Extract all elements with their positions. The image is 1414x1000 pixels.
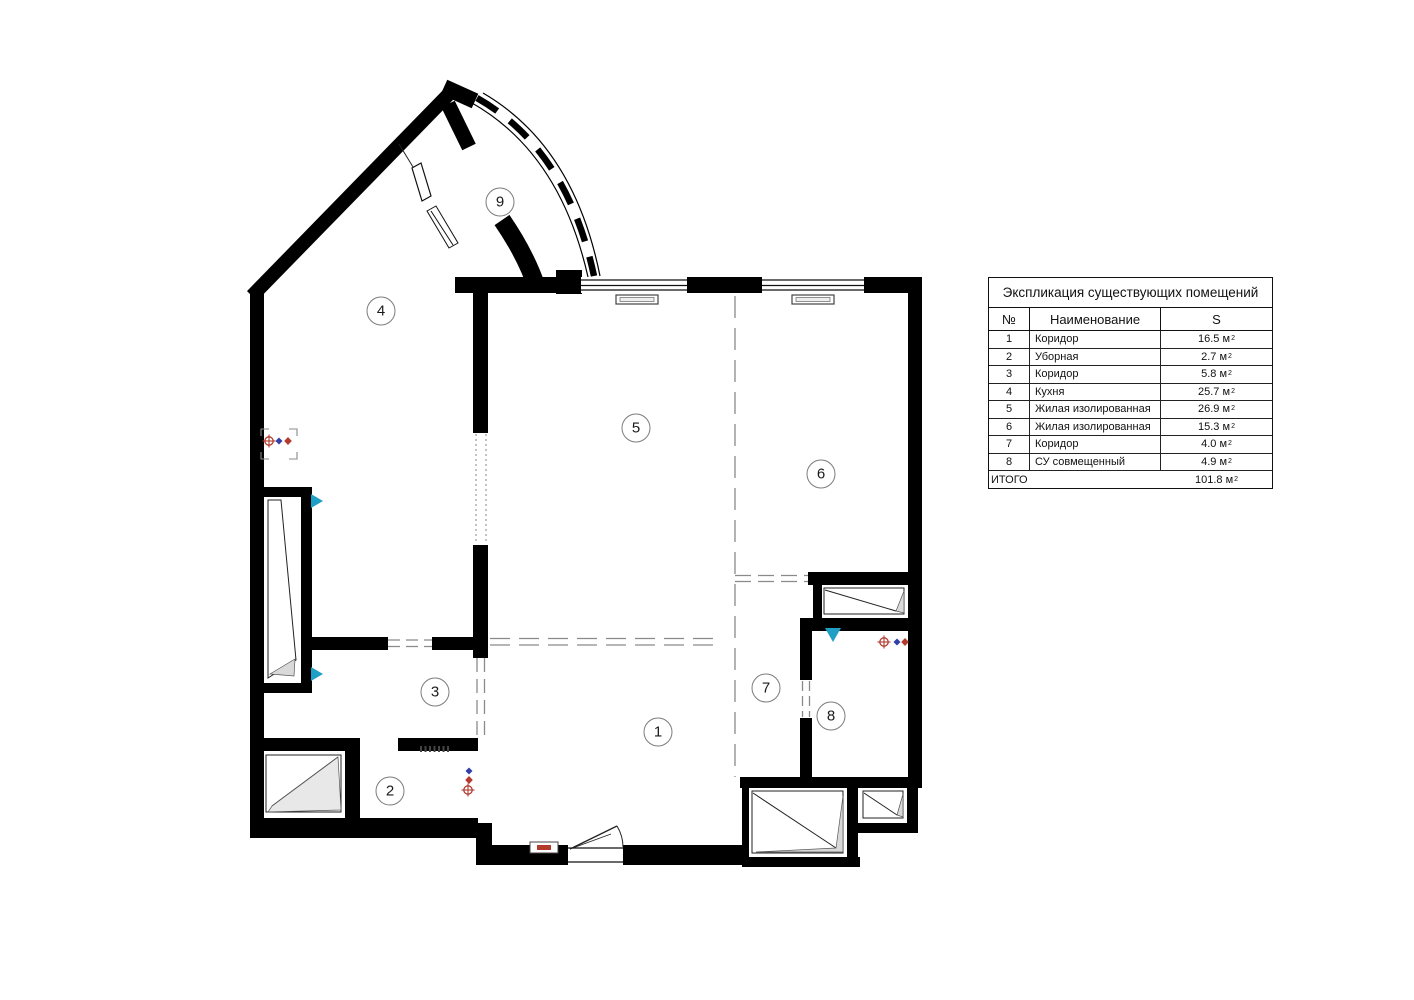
- window: [581, 277, 687, 293]
- room-badge-6: 6: [807, 460, 836, 489]
- survey-target-icon: [462, 784, 475, 797]
- cell-area: 25.7 м2: [1161, 384, 1272, 401]
- cell-name: Жилая изолированная: [1030, 401, 1161, 418]
- loggia-door-window: [399, 144, 458, 248]
- walls: [250, 270, 922, 867]
- door-leaf: [824, 588, 904, 614]
- room-badge-4: 4: [367, 297, 396, 326]
- cell-name: Кухня: [1030, 384, 1161, 401]
- cell-area: 26.9 м2: [1161, 401, 1272, 418]
- cell-num: 2: [989, 349, 1030, 366]
- cell-area: 16.5 м2: [1161, 331, 1272, 348]
- cell-num: 8: [989, 454, 1030, 471]
- cell-area: 15.3 м2: [1161, 419, 1272, 436]
- room-badge-2: 2: [376, 777, 405, 806]
- table-row: 3 Коридор 5.8 м2: [989, 366, 1272, 384]
- survey-marker-group: [462, 768, 475, 797]
- total-row: ИТОГО 101.8 м2: [989, 471, 1272, 488]
- room-badge-8: 8: [817, 702, 846, 731]
- cell-name: Уборная: [1030, 349, 1161, 366]
- vent-triangle-icon: [311, 494, 323, 508]
- table-row: 1 Коридор 16.5 м2: [989, 331, 1272, 349]
- diamond-icon: [894, 639, 901, 646]
- room-badge-7: 7: [752, 674, 781, 703]
- diamond-icon: [465, 776, 473, 784]
- col-header-name: Наименование: [1030, 308, 1161, 330]
- cell-area: 4.0 м2: [1161, 436, 1272, 453]
- window: [762, 277, 864, 293]
- cell-area: 2.7 м2: [1161, 349, 1272, 366]
- cell-name: СУ совмещенный: [1030, 454, 1161, 471]
- table-row: 4 Кухня 25.7 м2: [989, 384, 1272, 402]
- cell-name: Жилая изолированная: [1030, 419, 1161, 436]
- entry-door: [568, 826, 623, 865]
- table-row: 2 Уборная 2.7 м2: [989, 349, 1272, 367]
- room-badge-9: 9: [486, 188, 515, 217]
- floor-plan-page: 1 2 3 4 5 6 7 8 9 Экспликация существующ…: [0, 0, 1414, 1000]
- explication-table: Экспликация существующих помещений № Наи…: [988, 277, 1273, 489]
- room-badge-1: 1: [644, 718, 673, 747]
- table-title: Экспликация существующих помещений: [989, 278, 1272, 308]
- cell-name: Коридор: [1030, 436, 1161, 453]
- diamond-icon: [276, 438, 283, 445]
- door-leaf: [268, 500, 296, 678]
- cell-num: 5: [989, 401, 1030, 418]
- room-badge-3: 3: [421, 678, 450, 707]
- room-badge-5: 5: [622, 414, 651, 443]
- diamond-icon: [284, 437, 292, 445]
- cell-name: Коридор: [1030, 331, 1161, 348]
- electrical-panel-label: [530, 842, 558, 853]
- door-leaf: [863, 791, 903, 818]
- table-row: 5 Жилая изолированная 26.9 м2: [989, 401, 1272, 419]
- door-swing: [617, 826, 623, 847]
- door-leaf: [412, 163, 431, 201]
- survey-target-icon: [263, 435, 276, 448]
- cell-num: 6: [989, 419, 1030, 436]
- vent-triangle-icon: [311, 667, 323, 681]
- cell-name: Коридор: [1030, 366, 1161, 383]
- survey-marker-group: [825, 628, 909, 649]
- col-header-area: S: [1161, 308, 1272, 330]
- total-label: ИТОГО: [989, 471, 1161, 488]
- cell-num: 7: [989, 436, 1030, 453]
- diamond-icon: [466, 768, 473, 775]
- table-row: 8 СУ совмещенный 4.9 м2: [989, 454, 1272, 472]
- total-area: 101.8 м2: [1161, 471, 1272, 488]
- survey-target-icon: [878, 636, 891, 649]
- cell-num: 4: [989, 384, 1030, 401]
- demolition-dashed-lines: [388, 296, 810, 777]
- door-leaf: [752, 791, 843, 853]
- cell-area: 4.9 м2: [1161, 454, 1272, 471]
- radiator: [616, 295, 658, 304]
- col-header-num: №: [989, 308, 1030, 330]
- radiator: [792, 295, 834, 304]
- table-row: 6 Жилая изолированная 15.3 м2: [989, 419, 1272, 437]
- diamond-icon: [901, 638, 909, 646]
- loggia-glazing: [472, 93, 600, 277]
- cell-area: 5.8 м2: [1161, 366, 1272, 383]
- cell-num: 3: [989, 366, 1030, 383]
- table-header-row: № Наименование S: [989, 308, 1272, 331]
- door-leaf: [266, 755, 341, 812]
- floor-plan: [0, 0, 1414, 1000]
- survey-marker-group: [261, 429, 297, 459]
- cell-num: 1: [989, 331, 1030, 348]
- table-row: 7 Коридор 4.0 м2: [989, 436, 1272, 454]
- vent-triangle-icon: [825, 628, 841, 642]
